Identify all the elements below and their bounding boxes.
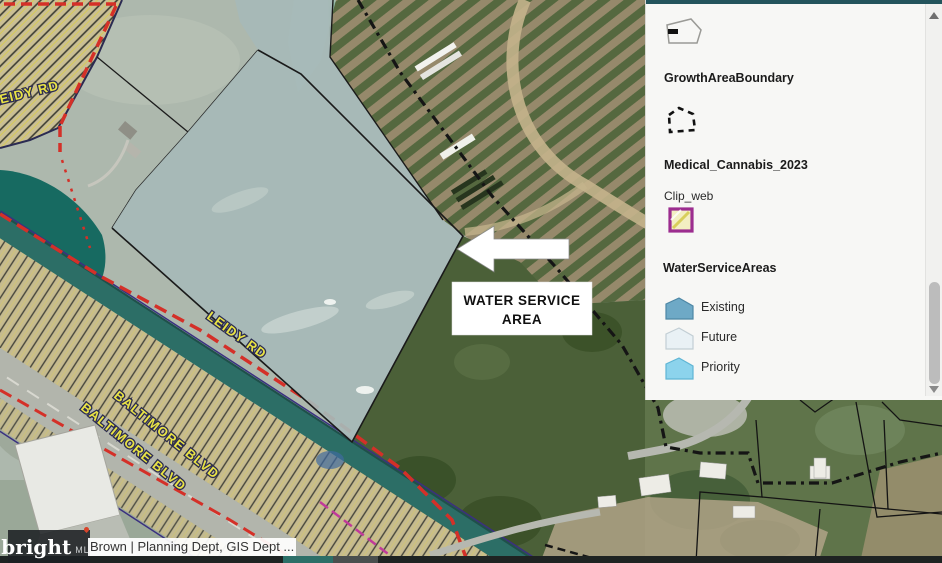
legend-growth-area-label: GrowthAreaBoundary [664,71,794,85]
brand-text: bright [1,537,71,557]
tree-cluster [454,344,510,380]
growth-area-boundary-icon [664,16,706,50]
panel-top-bar [646,0,942,4]
scroll-up-icon[interactable] [929,12,939,19]
bottom-bar-teal-segment [283,556,333,563]
legend-scrollbar[interactable] [925,4,942,396]
callout-box [452,282,592,335]
pond [316,451,344,469]
medical-cannabis-icon [664,104,700,136]
bottom-bar [0,556,942,563]
legend-clip-web-label: Clip_web [664,189,713,203]
scrollbar-thumb[interactable] [929,282,940,384]
future-swatch [665,327,694,350]
legend-priority-label: Priority [701,360,740,374]
legend-water-service-areas-label: WaterServiceAreas [663,261,777,275]
priority-swatch [665,357,694,380]
attribution-text: Brown | Planning Dept, GIS Dept ... [88,538,296,556]
legend-existing-label: Existing [701,300,745,314]
callout-text-line1: WATER SERVICE [463,293,580,308]
legend-medical-cannabis-label: Medical_Cannabis_2023 [664,158,808,172]
bottom-bar-gray-segment [333,556,378,563]
field-patch [815,405,905,455]
callout-text-line2: AREA [502,312,542,327]
gis-app-screenshot: WATER SERVICE AREA LEIDY RD LEIDY RD BAL… [0,0,942,563]
clip-web-swatch [668,207,694,233]
legend-panel: GrowthAreaBoundary Medical_Cannabis_2023… [645,0,942,400]
bright-mls-watermark: bright MLS [8,530,90,563]
legend-future-label: Future [701,330,737,344]
existing-swatch [665,297,694,320]
scroll-down-icon[interactable] [929,386,939,393]
